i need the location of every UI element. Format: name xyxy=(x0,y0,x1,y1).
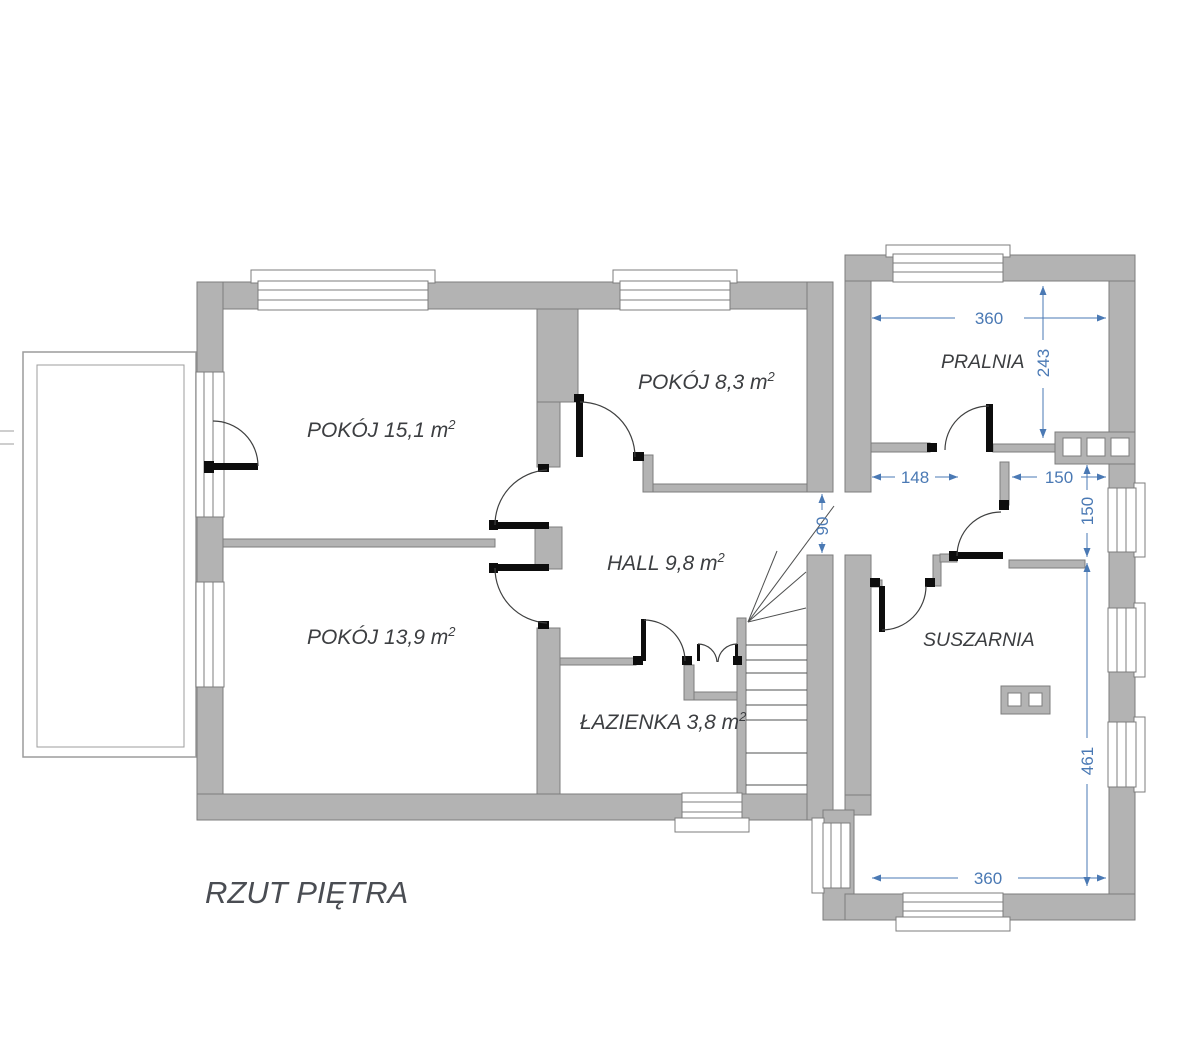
door-jamb xyxy=(870,578,880,587)
chimney-flue xyxy=(1029,693,1042,706)
door-swing-pokoj83 xyxy=(580,402,635,457)
chimney-flue xyxy=(1008,693,1021,706)
windows xyxy=(196,245,1145,931)
room-label-pokoj-8-3: POKÓJ 8,3 m2 xyxy=(638,369,776,394)
balcony-inner-edge xyxy=(37,365,184,747)
wall-pralnia-bottom-left xyxy=(871,443,930,452)
window-suszarnia-right-2 xyxy=(1108,722,1136,787)
wall-wing-right xyxy=(1109,281,1135,894)
dimension-vestibule-width: 150 xyxy=(1012,468,1106,487)
balcony-door-window xyxy=(196,372,224,517)
wall-closet-left xyxy=(684,665,694,700)
window-pokoj83 xyxy=(620,281,730,310)
wall-between-pokoj151-pokoj83 xyxy=(537,309,578,402)
dimension-value: 360 xyxy=(974,869,1002,888)
wall-pokoj83-bottom xyxy=(653,484,807,492)
door-leaf-pokoj139 xyxy=(495,564,549,571)
wall-vestibule-bottom xyxy=(1009,560,1085,568)
wall-main-left xyxy=(197,282,223,820)
window-lazienka xyxy=(682,793,742,821)
wall-wing-left-upper xyxy=(845,281,871,492)
wall-main-right-upper xyxy=(807,282,833,492)
door-swing-passage xyxy=(957,512,1001,556)
wall-vestibule-left xyxy=(1000,462,1009,505)
door-leaf-closet-left xyxy=(697,644,700,661)
floor-plan-page: 360 243 148 150 xyxy=(0,0,1200,1059)
wall-hall-stub xyxy=(535,527,562,569)
window-sill xyxy=(896,917,1010,931)
dimension-value: 90 xyxy=(813,517,832,536)
wall-hall-bottom xyxy=(560,658,636,665)
dimension-passage-width: 148 xyxy=(872,468,958,487)
dimension-value: 461 xyxy=(1078,747,1097,775)
door-leaf-pokoj83 xyxy=(576,400,583,457)
wall-pokoj83-jog xyxy=(643,455,653,492)
door-leaf-pralnia xyxy=(986,404,993,452)
plan-title: RZUT PIĘTRA xyxy=(205,875,408,910)
chimney-flue xyxy=(1063,438,1081,456)
door-leaf-pokoj151 xyxy=(495,522,549,529)
door-swing-pralnia xyxy=(945,406,989,450)
room-label-lazienka: ŁAZIENKA 3,8 m2 xyxy=(580,709,747,734)
balcony-outer-edge xyxy=(23,352,196,757)
door-jamb xyxy=(927,443,937,452)
door-jamb xyxy=(925,578,935,587)
wall-closet-bottom xyxy=(694,692,741,700)
room-label-pralnia: PRALNIA xyxy=(941,351,1024,373)
dimension-value: 150 xyxy=(1078,497,1097,525)
dimension-pralnia-width: 360 xyxy=(872,309,1106,328)
door-leaf-suszarnia xyxy=(879,586,885,632)
dimension-value: 150 xyxy=(1045,468,1073,487)
window-sill xyxy=(812,818,824,893)
dimension-value: 243 xyxy=(1034,349,1053,377)
window-pokoj139 xyxy=(196,582,224,687)
chimney-flue xyxy=(1087,438,1105,456)
stair-winder xyxy=(748,551,777,622)
door-hinge xyxy=(999,500,1009,510)
dimension-corridor-opening: 90 xyxy=(813,494,832,553)
door-swing-closet-left xyxy=(698,644,717,662)
door-jamb xyxy=(733,656,742,665)
chimney-flue xyxy=(1111,438,1129,456)
door-leaf-balcony xyxy=(212,463,258,470)
door-swing-suszarnia xyxy=(882,586,926,630)
wall-pokoj151-right xyxy=(537,402,560,467)
window-pralnia xyxy=(893,254,1003,282)
door-leaf-passage xyxy=(957,552,1003,559)
window-suszarnia-left xyxy=(823,823,850,888)
wall-main-right-lower xyxy=(807,555,833,820)
room-label-pokoj-13-9: POKÓJ 13,9 m2 xyxy=(307,624,456,649)
wall-pralnia-bottom-right xyxy=(993,444,1060,452)
room-label-hall: HALL 9,8 m2 xyxy=(607,550,726,575)
wall-wing-left-mid xyxy=(845,555,871,795)
window-suszarnia-right-1 xyxy=(1108,608,1136,672)
door-jamb xyxy=(682,656,692,665)
window-vestibule xyxy=(1108,488,1136,552)
wall-stairwell-left xyxy=(737,618,746,794)
room-label-suszarnia: SUSZARNIA xyxy=(923,629,1035,651)
floor-plan-drawing: 360 243 148 150 xyxy=(0,0,1200,1059)
room-label-pokoj-15-1: POKÓJ 15,1 m2 xyxy=(307,417,456,442)
window-sill xyxy=(675,818,749,832)
window-pokoj151 xyxy=(258,281,428,310)
dimension-suszarnia-width: 360 xyxy=(872,869,1106,888)
dimension-value: 360 xyxy=(975,309,1003,328)
dimension-suszarnia-depth: 461 xyxy=(1078,563,1097,886)
main-building-walls xyxy=(197,282,833,820)
door-swing-pokoj139 xyxy=(495,568,547,623)
wall-between-pokoj151-pokoj139 xyxy=(223,539,495,547)
dimension-pralnia-depth: 243 xyxy=(1034,286,1053,438)
balcony xyxy=(0,352,196,757)
door-swing-lazienka xyxy=(644,620,685,661)
door-leaf-lazienka xyxy=(641,619,646,661)
door-swing-pokoj151 xyxy=(495,470,547,525)
wall-pokoj139-lazienka xyxy=(537,628,560,794)
dimension-value: 148 xyxy=(901,468,929,487)
dimension-vestibule-depth: 150 xyxy=(1078,465,1097,557)
